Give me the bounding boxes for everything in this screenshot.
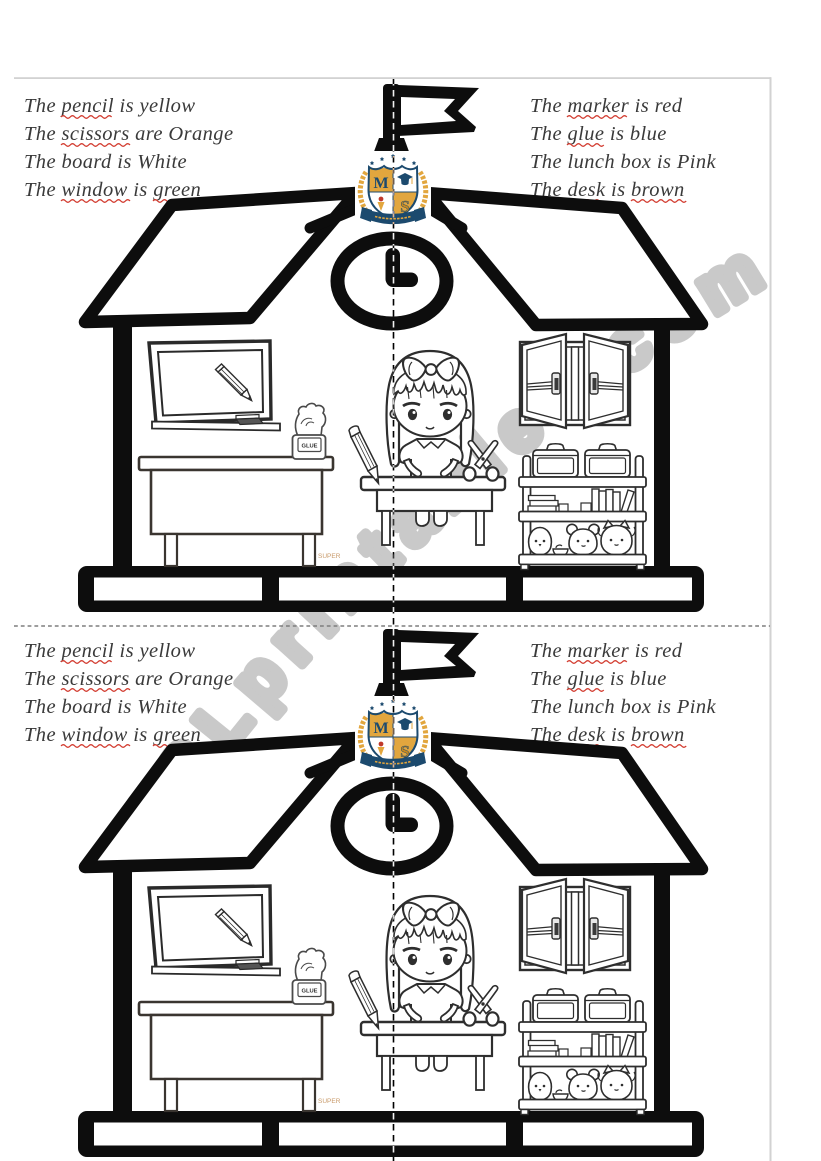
svg-text:The marker is red: The marker is red xyxy=(530,95,683,117)
svg-text:The lunch box is Pink: The lunch box is Pink xyxy=(530,151,717,173)
svg-text:GLUE: GLUE xyxy=(301,444,317,450)
svg-text:M: M xyxy=(373,175,388,192)
svg-text:The board is White: The board is White xyxy=(24,151,187,173)
svg-text:The glue is blue: The glue is blue xyxy=(530,123,667,145)
svg-text:The pencil is yellow: The pencil is yellow xyxy=(24,95,195,117)
svg-text:The scissors are Orange: The scissors are Orange xyxy=(24,123,233,145)
svg-text:The window is green: The window is green xyxy=(24,179,201,201)
svg-text:SUPER: SUPER xyxy=(318,553,341,560)
